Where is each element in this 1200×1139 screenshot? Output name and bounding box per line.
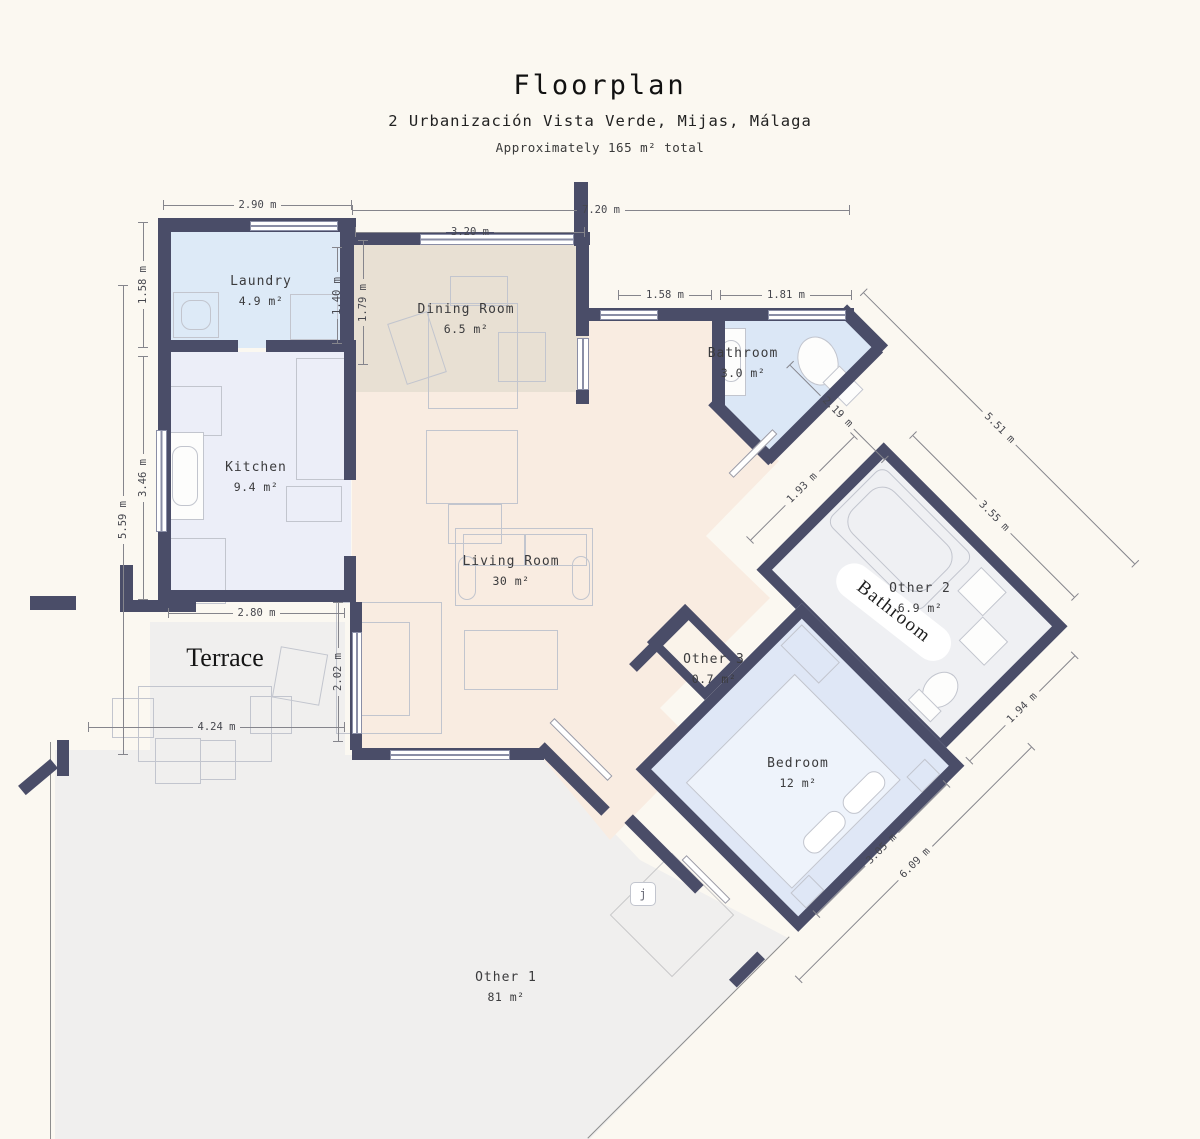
dim-overall-top: 7.20 m [352,203,850,217]
dim-laundry-top: 2.90 m [163,198,352,212]
plan-header: Floorplan 2 Urbanización Vista Verde, Mi… [0,70,1200,155]
window [600,310,658,320]
dim-terrace-right: 2.02 m [331,602,345,742]
wall-segment [158,218,171,358]
room-name: Bedroom [738,756,858,771]
window [768,310,846,320]
wall-segment [576,390,589,404]
dim-kitchen-left: 3.46 m [136,356,150,600]
coffee-table [464,630,558,690]
window [250,221,338,231]
boundary-line [50,742,51,1139]
room-label-living: Living Room 30 m² [441,554,581,588]
dim-laundry-left: 1.58 m [136,222,150,348]
dim-dining-left: 1.79 m [356,240,370,365]
dim-dining-top: 3.20 m [355,225,585,239]
room-name: Laundry [201,274,321,289]
room-area: 81 m² [446,990,566,1004]
room-area: 12 m² [738,776,858,790]
dim-left-overall: 5.59 m [116,285,130,755]
room-label-other3: Other 3 0.7 m² [654,652,774,686]
terrace-chair [155,738,201,784]
room-label-bedroom: Bedroom 12 m² [738,756,858,790]
room-name: Living Room [441,554,581,569]
kitchen-sink-basin [172,446,198,506]
window [156,430,167,532]
kitchen-counter [170,386,222,436]
wall-segment [18,759,58,795]
room-area: 6.9 m² [860,601,980,615]
room-name: Other 1 [446,970,566,985]
window [390,750,510,760]
room-area: 0.7 m² [654,672,774,686]
light-symbol-glyph: j [639,887,646,901]
dining-table [426,430,518,504]
room-label-other1: Other 1 81 m² [446,970,566,1004]
dim-terrace-top: 2.80 m [168,606,345,620]
room-label-other2: Other 2 6.9 m² [860,581,980,615]
terrace-chair [200,740,236,780]
wardrobe [781,624,840,683]
dim-laundry-right: 1.40 m [330,247,344,344]
wall-segment [158,340,238,352]
page-title: Floorplan [0,70,1200,101]
window [577,338,589,390]
wall-segment [344,556,356,602]
window [352,632,362,734]
room-name: Bathroom [683,346,803,361]
dim-bath-top: 1.81 m [720,288,852,302]
room-label-dining: Dining Room 6.5 m² [396,302,536,336]
sink-icon [959,616,1008,665]
room-name: Kitchen [196,460,316,475]
room-area: 6.5 m² [396,322,536,336]
wall-segment [30,596,76,610]
address-subtitle: 2 Urbanización Vista Verde, Mijas, Málag… [0,112,1200,130]
room-area: 3.0 m² [683,366,803,380]
room-name: Dining Room [396,302,536,317]
room-label-laundry: Laundry 4.9 m² [201,274,321,308]
wall-segment [57,740,69,776]
room-name: Other 2 [860,581,980,596]
wall-segment [344,352,356,480]
room-area: 4.9 m² [201,294,321,308]
room-label-bathroom: Bathroom 3.0 m² [683,346,803,380]
room-name: Other 3 [654,652,774,667]
floorplan-canvas: Floorplan 2 Urbanización Vista Verde, Mi… [0,0,1200,1139]
dim-hall-top: 1.58 m [618,288,712,302]
terrace-label: Terrace [145,643,305,673]
total-area-note: Approximately 165 m² total [0,140,1200,155]
light-symbol: j [630,882,656,906]
room-label-kitchen: Kitchen 9.4 m² [196,460,316,494]
room-area: 9.4 m² [196,480,316,494]
dining-chair [498,332,546,382]
room-area: 30 m² [441,574,581,588]
